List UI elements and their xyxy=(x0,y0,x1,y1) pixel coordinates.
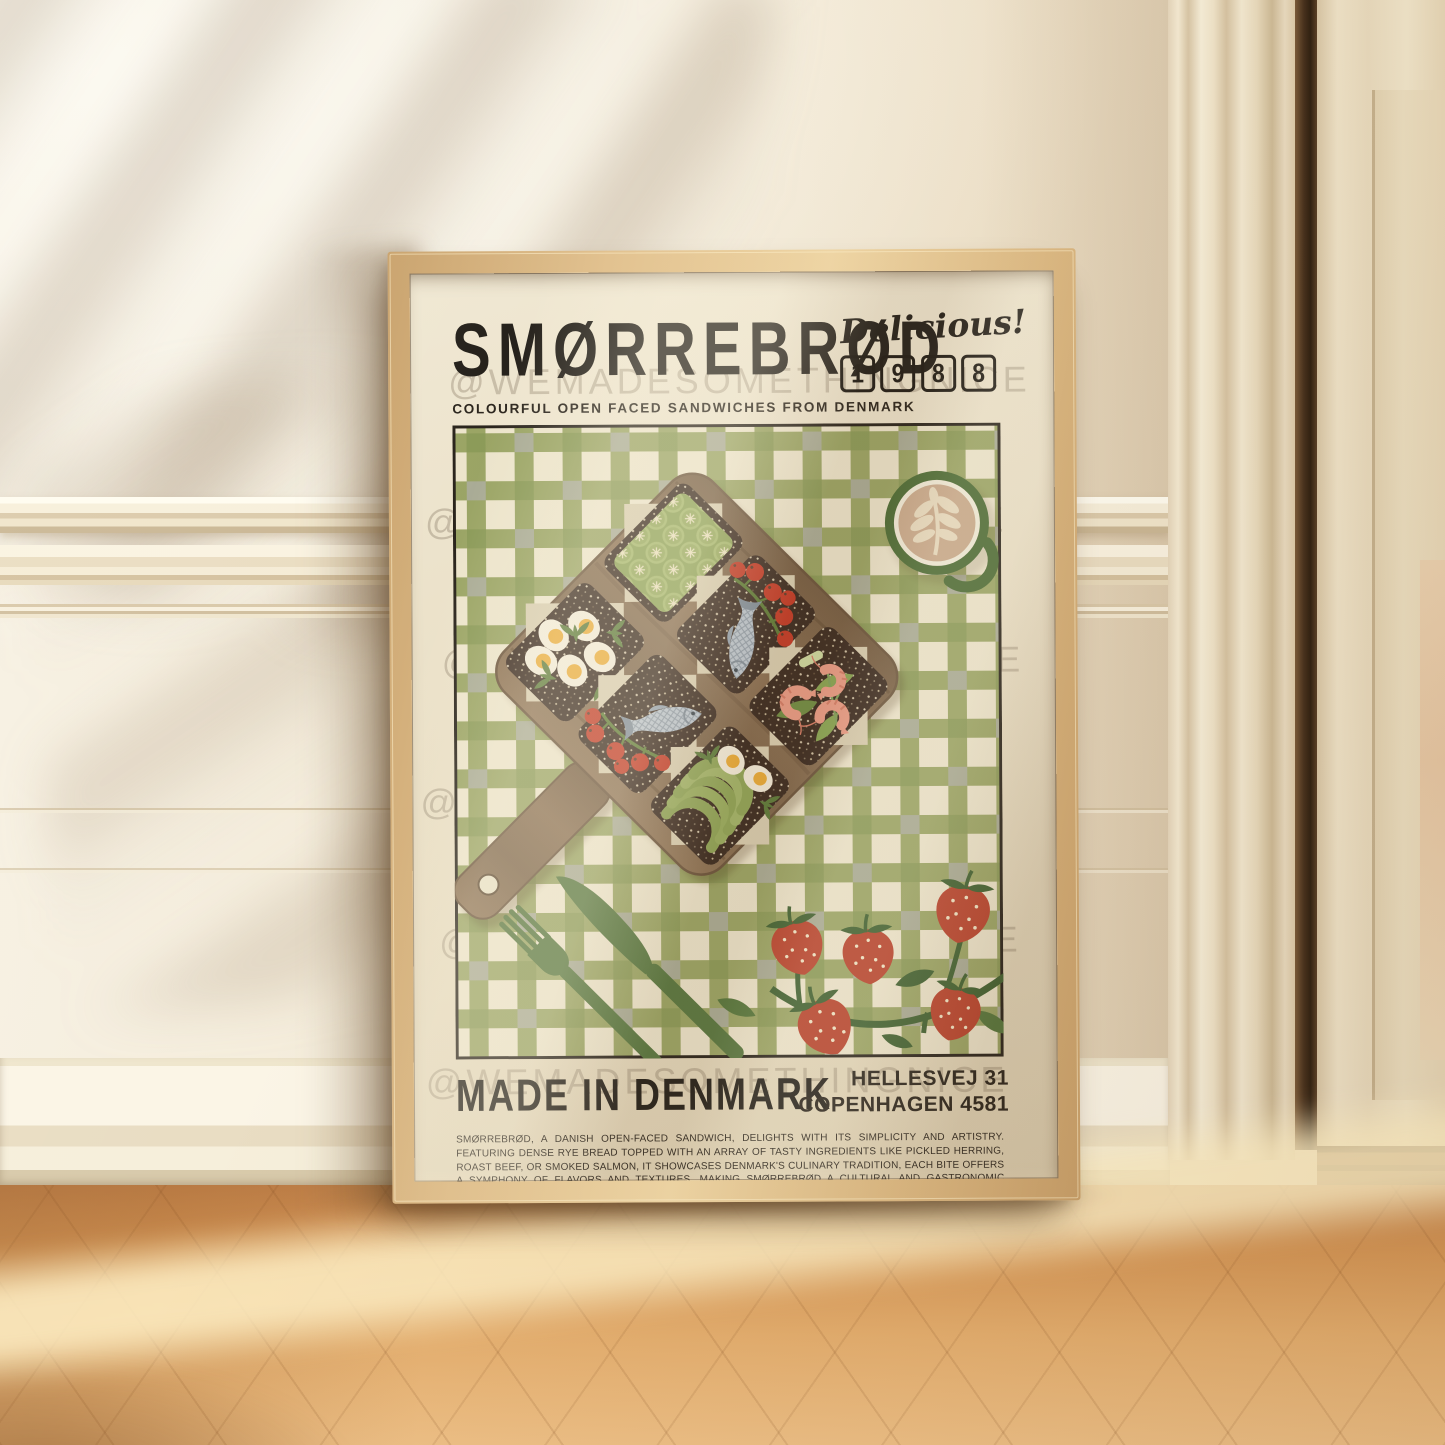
year-digit-box: 9 xyxy=(880,355,915,392)
year-digit-box: 1 xyxy=(840,355,875,392)
year-digit-box: 8 xyxy=(961,355,996,392)
tagline-script: Delicious! xyxy=(839,302,1027,352)
poster-subtitle: COLOURFUL OPEN FACED SANDWICHES FROM DEN… xyxy=(452,399,915,416)
door-glass-reflection xyxy=(1420,560,1445,1060)
year-digit: 8 xyxy=(972,358,985,389)
year-digit: 8 xyxy=(932,358,945,389)
floor-shadow xyxy=(0,1360,460,1445)
door-gap xyxy=(1295,0,1317,1150)
room-scene: @WEMADESOMETHINGNICE @WEMADESOMETHINGNIC… xyxy=(0,0,1445,1445)
year-digit-box: 8 xyxy=(921,355,956,392)
address: HELLESVEJ 31 COPENHAGEN 4581 xyxy=(798,1066,1009,1118)
year-digit: 9 xyxy=(891,358,904,389)
address-line-2: COPENHAGEN 4581 xyxy=(798,1091,1009,1118)
door-casing xyxy=(1168,0,1295,1160)
picture-frame: @WEMADESOMETHINGNICE @WEMADESOMETHINGNIC… xyxy=(388,248,1081,1204)
door xyxy=(1317,0,1445,1155)
smorrebrod-illustration xyxy=(452,423,1003,1060)
poster-description: SMØRREBRØD, A DANISH OPEN-FACED SANDWICH… xyxy=(456,1131,1004,1182)
smorrebrod-poster: @WEMADESOMETHINGNICE @WEMADESOMETHINGNIC… xyxy=(410,270,1059,1181)
year-boxes: 1 9 8 8 xyxy=(840,355,996,393)
address-line-1: HELLESVEJ 31 xyxy=(798,1066,1009,1093)
made-in-denmark: MADE IN DENMARK xyxy=(456,1071,832,1118)
tagline-column: Delicious! 1 9 8 8 xyxy=(840,307,996,393)
year-digit: 1 xyxy=(851,358,864,389)
